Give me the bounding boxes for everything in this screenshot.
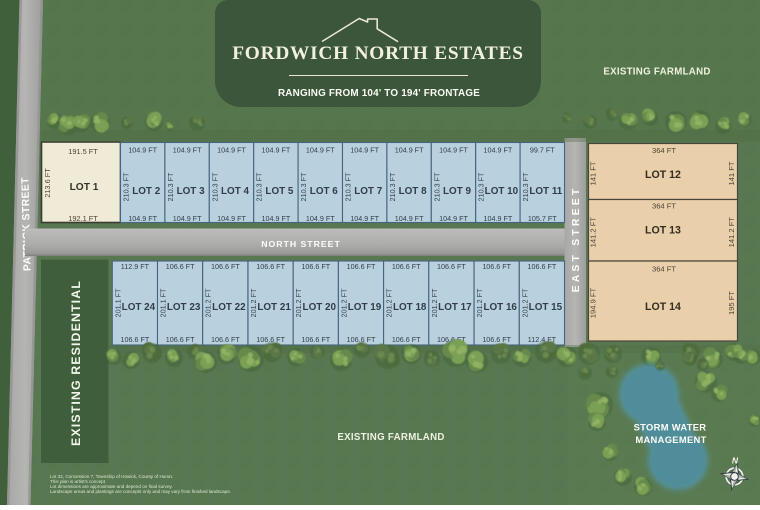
svg-text:LOT 4: LOT 4 [221, 186, 249, 197]
svg-text:104.9 FT: 104.9 FT [306, 214, 335, 223]
svg-text:EXISTING FARMLAND: EXISTING FARMLAND [337, 432, 444, 443]
svg-text:210.3 FT: 210.3 FT [344, 172, 353, 201]
svg-text:LOT 19: LOT 19 [348, 302, 382, 313]
svg-text:N: N [732, 456, 739, 466]
svg-text:106.6 FT: 106.6 FT [211, 262, 240, 271]
svg-text:LOT 7: LOT 7 [354, 186, 382, 197]
svg-text:106.6 FT: 106.6 FT [392, 335, 421, 344]
svg-text:LOT 15: LOT 15 [529, 302, 563, 313]
svg-text:LOT 6: LOT 6 [310, 186, 338, 197]
svg-text:106.6 FT: 106.6 FT [211, 335, 240, 344]
svg-text:112.9 FT: 112.9 FT [121, 262, 150, 271]
svg-text:LOT 10: LOT 10 [485, 186, 519, 197]
svg-text:141 FT: 141 FT [727, 161, 736, 185]
svg-text:LOT 13: LOT 13 [645, 225, 681, 237]
svg-text:106.6 FT: 106.6 FT [166, 262, 195, 271]
svg-text:EXISTING FARMLAND: EXISTING FARMLAND [603, 67, 710, 78]
svg-text:141.2 FT: 141.2 FT [589, 217, 598, 248]
svg-text:LOT 16: LOT 16 [483, 302, 517, 313]
svg-text:104.9 FT: 104.9 FT [395, 214, 424, 223]
svg-text:106.6 FT: 106.6 FT [482, 335, 511, 344]
svg-text:LOT 23: LOT 23 [167, 302, 201, 313]
svg-text:RANGING FROM 104' TO 194' FRO: RANGING FROM 104' TO 194' FRONTAGE [278, 88, 480, 99]
svg-text:104.9 FT: 104.9 FT [306, 146, 335, 155]
svg-text:106.6 FT: 106.6 FT [301, 262, 330, 271]
svg-text:194.9 FT: 194.9 FT [589, 287, 598, 318]
svg-text:106.6 FT: 106.6 FT [437, 262, 466, 271]
svg-text:NORTH STREET: NORTH STREET [261, 239, 341, 249]
svg-text:LOT 22: LOT 22 [212, 302, 246, 313]
svg-text:104.9 FT: 104.9 FT [217, 214, 246, 223]
svg-text:EXISTING RESIDENTIAL: EXISTING RESIDENTIAL [69, 280, 83, 446]
svg-text:195 FT: 195 FT [727, 291, 736, 315]
svg-text:LOT 2: LOT 2 [132, 186, 160, 197]
svg-text:104.9 FT: 104.9 FT [350, 146, 379, 155]
svg-text:LOT 1: LOT 1 [70, 182, 99, 193]
svg-text:191.5 FT: 191.5 FT [68, 147, 98, 156]
svg-text:104.9 FT: 104.9 FT [173, 146, 202, 155]
svg-text:LOT 20: LOT 20 [303, 302, 337, 313]
svg-text:LOT 12: LOT 12 [645, 169, 681, 181]
svg-text:104.9 FT: 104.9 FT [128, 214, 157, 223]
svg-text:LOT 24: LOT 24 [122, 302, 156, 313]
svg-text:192.1 FT: 192.1 FT [68, 214, 98, 223]
svg-text:104.9 FT: 104.9 FT [350, 214, 379, 223]
svg-text:LOT 14: LOT 14 [645, 301, 681, 313]
svg-text:LOT 17: LOT 17 [438, 302, 472, 313]
svg-text:210.3 FT: 210.3 FT [166, 172, 175, 201]
svg-text:104.9 FT: 104.9 FT [395, 146, 424, 155]
svg-text:106.6 FT: 106.6 FT [347, 262, 376, 271]
svg-text:FORDWICH NORTH ESTATES: FORDWICH NORTH ESTATES [232, 43, 524, 64]
svg-text:MANAGEMENT: MANAGEMENT [635, 434, 706, 445]
svg-text:104.9 FT: 104.9 FT [128, 146, 157, 155]
svg-text:99.7 FT: 99.7 FT [530, 146, 555, 155]
svg-text:LOT 5: LOT 5 [265, 186, 293, 197]
svg-text:364 FT: 364 FT [652, 202, 676, 211]
svg-text:Landscape areas and plantings: Landscape areas and plantings are concep… [50, 489, 231, 494]
svg-text:210.3 FT: 210.3 FT [255, 172, 264, 201]
svg-text:106.6 FT: 106.6 FT [256, 262, 285, 271]
svg-text:104.9 FT: 104.9 FT [173, 214, 202, 223]
svg-text:106.6 FT: 106.6 FT [528, 262, 557, 271]
svg-text:PATRICK STREET: PATRICK STREET [20, 177, 33, 272]
svg-text:EAST STREET: EAST STREET [571, 186, 582, 293]
svg-text:106.6 FT: 106.6 FT [121, 335, 150, 344]
svg-text:210.3 FT: 210.3 FT [432, 172, 441, 201]
svg-text:LOT 8: LOT 8 [399, 186, 427, 197]
svg-text:210.3 FT: 210.3 FT [122, 172, 131, 201]
svg-text:106.6 FT: 106.6 FT [301, 335, 330, 344]
svg-text:364 FT: 364 FT [652, 146, 676, 155]
svg-text:106.6 FT: 106.6 FT [482, 262, 511, 271]
svg-text:213.6 FT: 213.6 FT [43, 168, 52, 198]
svg-text:105.7 FT: 105.7 FT [528, 214, 557, 223]
svg-text:141.2 FT: 141.2 FT [727, 217, 736, 248]
svg-text:104.9 FT: 104.9 FT [484, 214, 513, 223]
svg-text:104.9 FT: 104.9 FT [262, 146, 291, 155]
svg-text:LOT 9: LOT 9 [443, 186, 471, 197]
svg-text:104.9 FT: 104.9 FT [217, 146, 246, 155]
svg-text:210.3 FT: 210.3 FT [388, 172, 397, 201]
svg-text:LOT 21: LOT 21 [257, 302, 291, 313]
svg-text:LOT 11: LOT 11 [529, 186, 562, 197]
svg-text:104.9 FT: 104.9 FT [262, 214, 291, 223]
svg-text:104.9 FT: 104.9 FT [484, 146, 513, 155]
svg-text:LOT 18: LOT 18 [393, 302, 427, 313]
svg-text:210.3 FT: 210.3 FT [210, 172, 219, 201]
svg-text:104.9 FT: 104.9 FT [439, 214, 468, 223]
svg-text:STORM WATER: STORM WATER [634, 422, 707, 433]
svg-text:364 FT: 364 FT [652, 265, 676, 274]
svg-text:104.9 FT: 104.9 FT [439, 146, 468, 155]
svg-text:LOT 3: LOT 3 [177, 186, 205, 197]
svg-text:106.6 FT: 106.6 FT [166, 335, 195, 344]
svg-text:210.3 FT: 210.3 FT [299, 172, 308, 201]
svg-text:141 FT: 141 FT [589, 161, 598, 185]
svg-text:106.6 FT: 106.6 FT [392, 262, 421, 271]
